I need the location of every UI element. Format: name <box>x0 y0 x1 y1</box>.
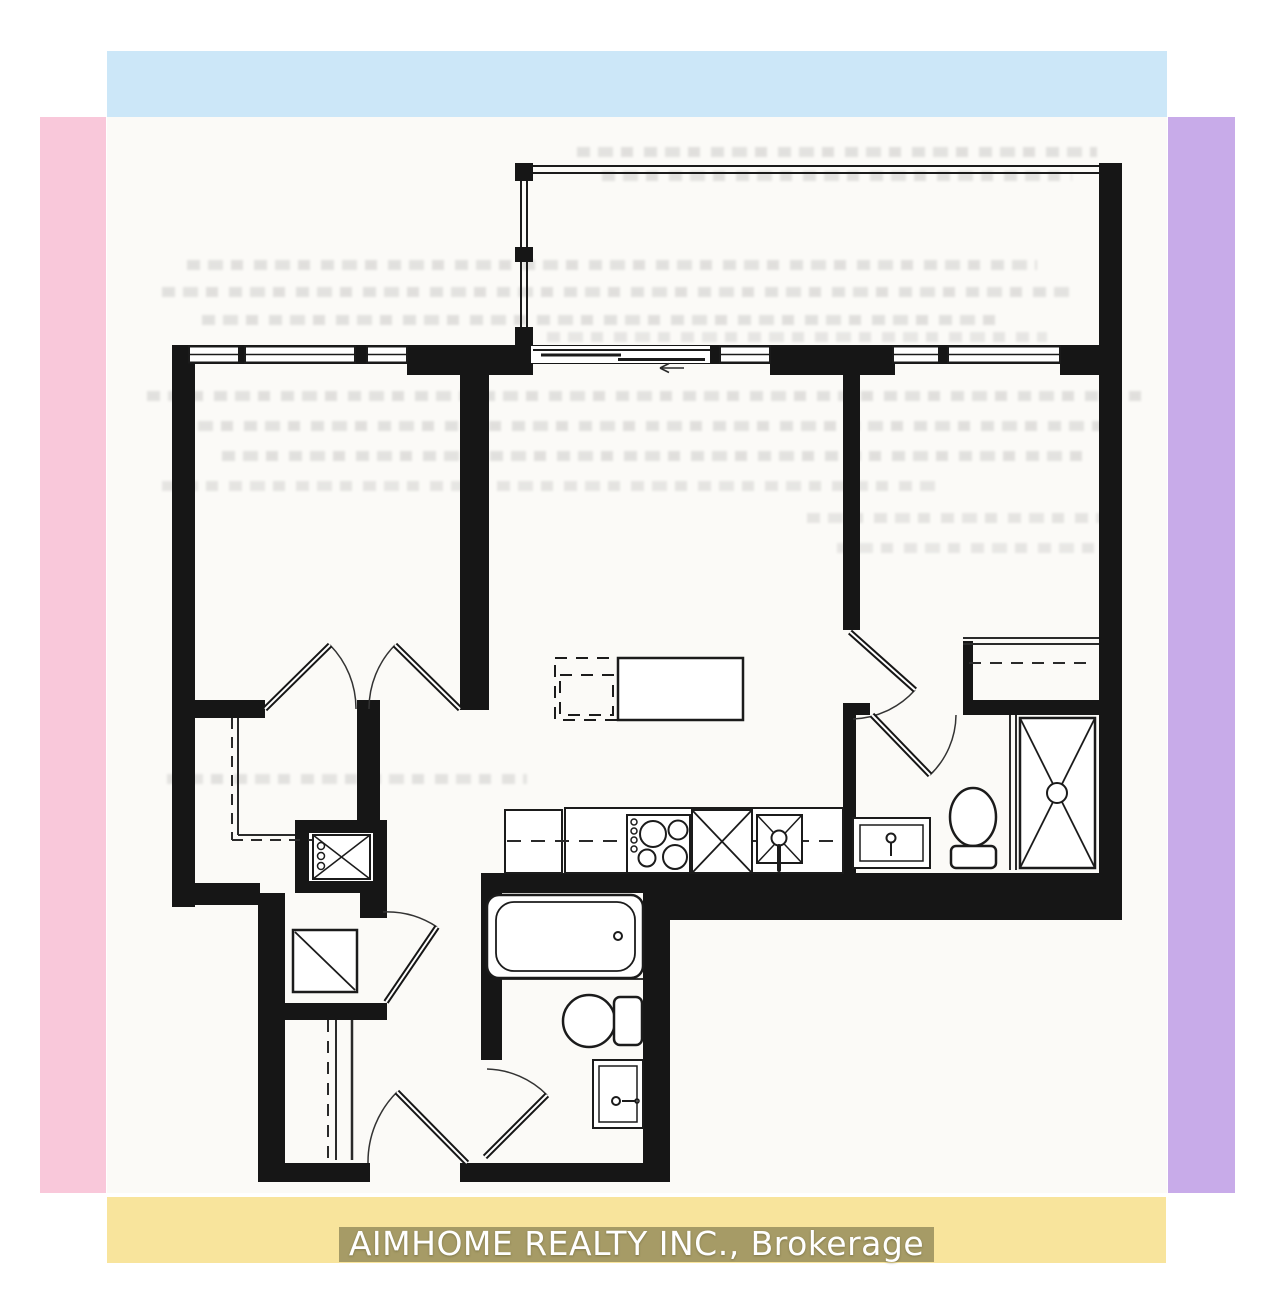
cooktop-icon <box>627 815 690 873</box>
corridor-door <box>383 912 437 1002</box>
frame-strip-top <box>107 51 1167 117</box>
balcony-railing <box>520 166 1110 345</box>
kitchen-sink-icon <box>757 815 802 870</box>
bedroom2-closet-lines <box>963 638 1099 663</box>
ensuite-toilet-icon <box>950 788 996 868</box>
main-toilet-icon <box>563 995 642 1047</box>
main-bathroom-door <box>485 1069 547 1157</box>
main-vanity-sink-icon <box>593 1060 643 1128</box>
bathtub-icon <box>487 895 643 979</box>
window-segment <box>189 347 239 363</box>
floorplan-page: AIMHOME REALTY INC., Brokerage <box>0 0 1273 1312</box>
shower-icon <box>1020 718 1095 868</box>
brokerage-text: AIMHOME REALTY INC., Brokerage <box>339 1227 934 1262</box>
window-segment <box>720 347 770 363</box>
ensuite-door <box>872 715 956 775</box>
dishwasher-icon <box>692 810 752 873</box>
bedroom1-double-doors <box>265 645 460 709</box>
foyer-closet-lines <box>328 1020 352 1160</box>
floor-plan-sheet <box>107 117 1167 1193</box>
ensuite-partition <box>1010 715 1016 870</box>
frame-strip-left <box>40 117 106 1193</box>
window-segment <box>948 347 1060 363</box>
window-segment <box>893 347 939 363</box>
frame-strip-right <box>1168 117 1235 1193</box>
entry-closet-icon <box>293 930 357 992</box>
kitchen-island <box>555 658 743 720</box>
washer-dryer-icon <box>313 835 370 879</box>
window-segment <box>367 347 407 363</box>
slide-direction-arrow-icon <box>660 364 684 373</box>
entry-door <box>368 1092 467 1163</box>
frame-strip-bottom: AIMHOME REALTY INC., Brokerage <box>107 1197 1166 1263</box>
balcony-sliding-door <box>531 346 710 373</box>
ensuite-vanity-sink-icon <box>853 818 930 868</box>
window-segment <box>245 347 355 363</box>
floor-plan-drawing <box>107 117 1167 1193</box>
balcony-railing-posts <box>515 163 533 345</box>
